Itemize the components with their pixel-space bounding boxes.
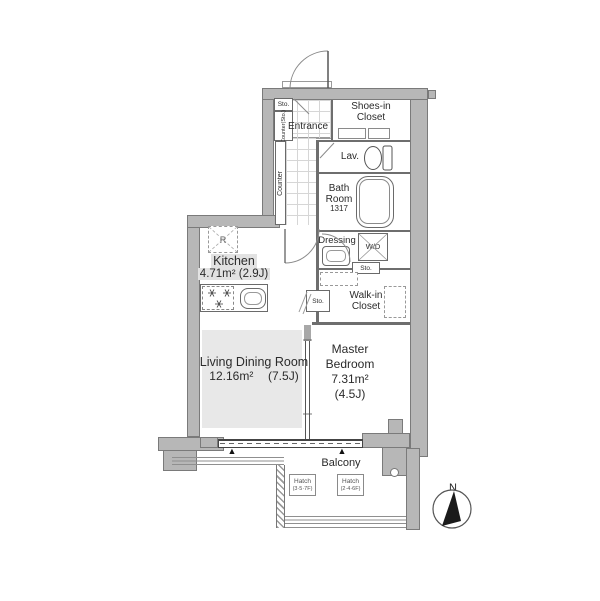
hall-storage-box: Sto.: [306, 290, 330, 312]
partition-shoes-closet: [331, 100, 333, 140]
wall-left-upper: [262, 99, 274, 220]
living-dining-label: Living Dining Room: [192, 355, 316, 369]
compass-north-arrow: [442, 491, 461, 526]
washbasin-bowl: [326, 250, 346, 262]
wall-top-right-step: [428, 90, 436, 99]
balcony-railing-bottom: [285, 516, 406, 528]
partition-lav-top: [318, 140, 410, 142]
bedroom-size: 7.31m²: [310, 372, 390, 387]
washer-dryer-box: W/D: [358, 233, 388, 261]
kitchen-sink-inner: [244, 292, 262, 305]
refrigerator-space-box: R: [208, 226, 238, 253]
balcony-label: Balcony: [306, 457, 376, 469]
compass-circle: [433, 490, 471, 528]
balcony-hatch-box-1: Hatch (3·5·7F): [289, 474, 316, 496]
partition-walkin-bedroom: [312, 322, 410, 325]
refrigerator-label: R: [209, 235, 237, 245]
washer-dryer-label: W/D: [363, 243, 383, 251]
partition-lav-bath: [318, 172, 410, 174]
living-dining-size: 12.16m² (7.5J): [192, 370, 316, 383]
toilet-tank-icon: [383, 146, 392, 170]
kitchen-sink-icon: [240, 288, 266, 309]
compass-north-label: N: [444, 482, 462, 494]
wall-balcony-right: [406, 448, 420, 530]
corridor-counter-label: Counter: [277, 171, 284, 196]
wall-bedroom-bottom: [362, 433, 410, 448]
entrance-storage-label: Sto.: [275, 101, 292, 108]
partition-ldk-bedroom-cap: [304, 325, 311, 341]
kitchen-label: Kitchen: [190, 254, 278, 268]
bath-size-code: 1317: [318, 205, 360, 214]
bathtub-icon: [356, 176, 394, 228]
vent-marker-left: ▲: [224, 446, 240, 456]
partition-bath-dressing: [318, 230, 410, 232]
corridor-tile-floor: [286, 138, 316, 225]
wall-sill-left: [200, 437, 218, 448]
washbasin-icon: [322, 246, 350, 266]
shoes-closet-label: Shoes-in Closet: [334, 101, 408, 123]
wall-bedroom-pillar-stub: [388, 419, 403, 434]
balcony-railing-left: [172, 457, 284, 468]
corridor-counter: Counter: [275, 141, 286, 225]
kitchen-size-label: 4.71m² (2.9J): [186, 268, 282, 281]
balcony-drain-circle: [390, 468, 399, 477]
vent-marker-right: ▲: [334, 446, 350, 456]
floor-plan: Sto. Counter(Sto.) Counter Entrance Shoe…: [0, 0, 600, 601]
walkin-hanger-rack-right: [384, 286, 406, 318]
entrance-porch-step: [282, 81, 332, 88]
bathtub-inner: [359, 179, 390, 224]
bedroom-label: Master Bedroom 7.31m² (4.5J): [310, 342, 390, 402]
stove-icon: [202, 286, 234, 310]
balcony-hatch-box-2: Hatch (2·4·6F): [337, 474, 364, 496]
hall-storage-label: Sto.: [307, 298, 329, 305]
balcony-divider-panel: [276, 465, 285, 528]
entrance-label: Entrance: [286, 121, 330, 132]
wall-right: [410, 99, 428, 457]
lavatory-label: Lav.: [330, 151, 370, 162]
bedroom-jyo: (4.5J): [310, 387, 390, 402]
bath-label: Bath Room 1317: [318, 183, 360, 214]
shoes-shelf-right: [368, 128, 390, 139]
shoes-shelf-left: [338, 128, 366, 139]
walkin-hanger-rack-top: [320, 272, 358, 286]
